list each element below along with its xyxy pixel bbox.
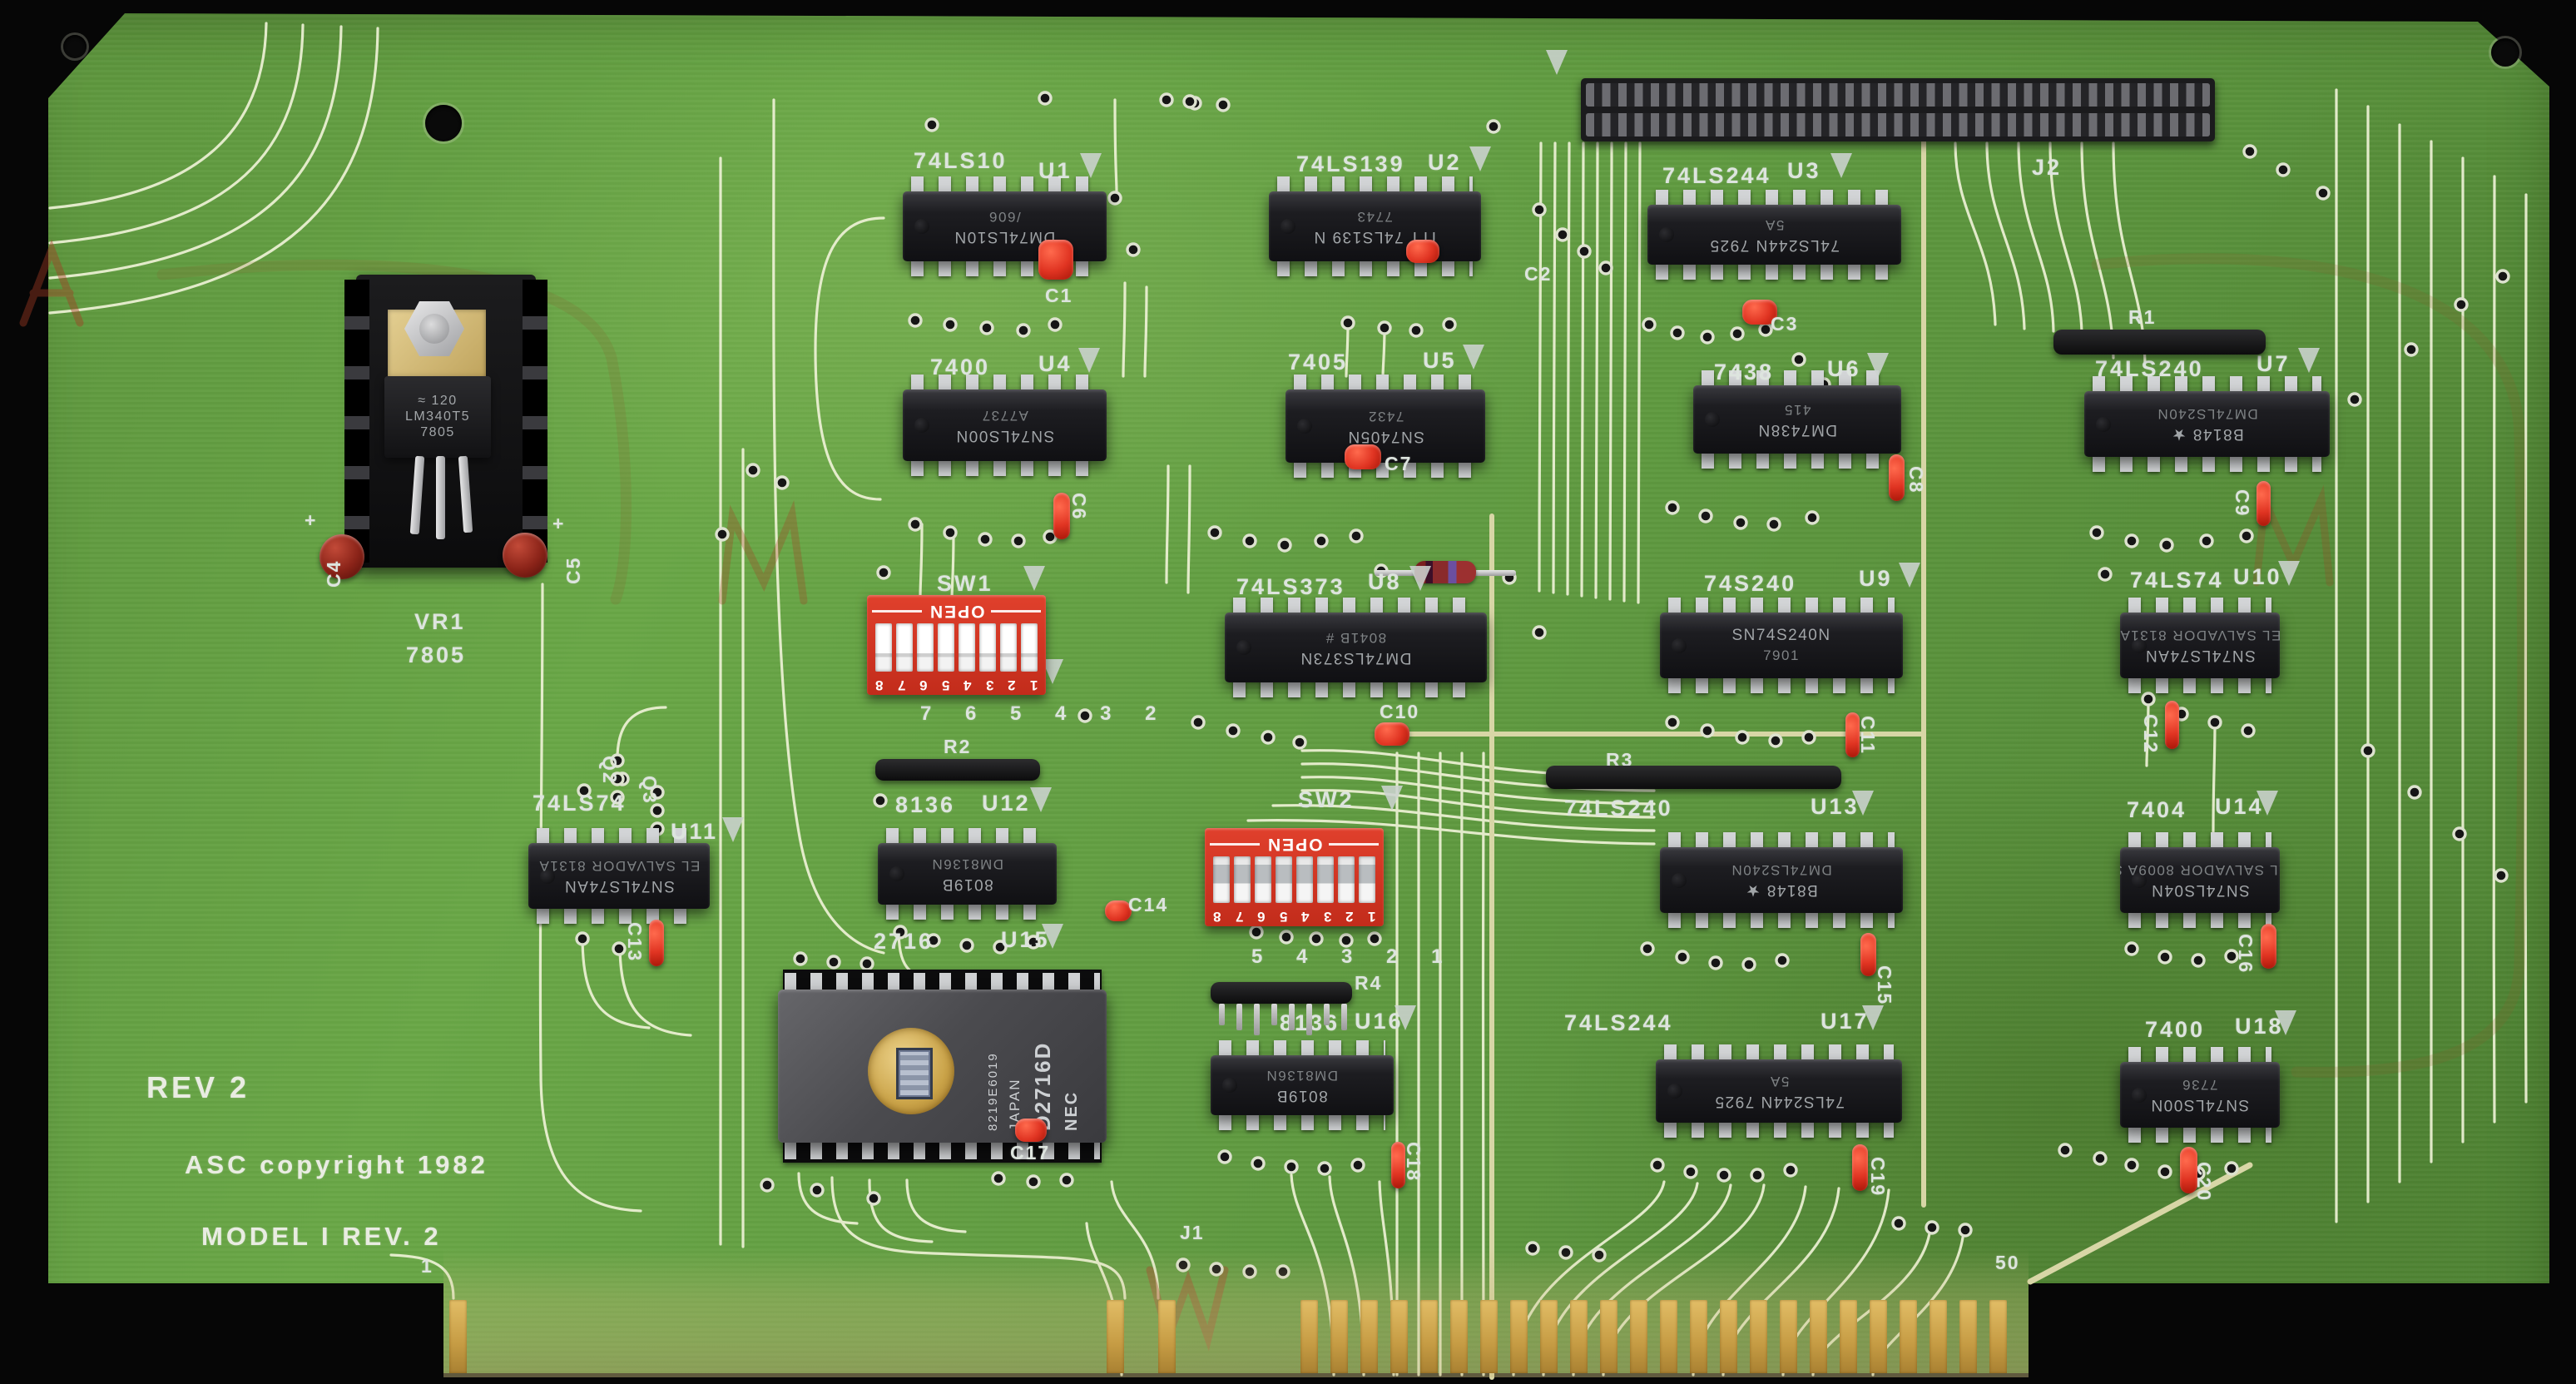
dip-switch-number: 3	[1324, 908, 1331, 925]
dip-switch-number: 8	[875, 677, 883, 693]
capacitor-c8	[1889, 454, 1905, 501]
ic-marking-line: EL SALVADOR 8131A	[2120, 627, 2280, 643]
board-copyright-text: ASC copyright 1982	[185, 1150, 488, 1180]
ic-marking-line: EL SALVADOR 8009A S	[2120, 861, 2280, 878]
silkscreen-triangle-icon	[2298, 348, 2320, 373]
ic-u13: B8148 ★DM74LS240N	[1660, 832, 1903, 928]
silkscreen-label: SW1	[937, 571, 993, 597]
silkscreen-label: R4	[1355, 972, 1382, 995]
via	[2159, 1166, 2171, 1178]
silkscreen-label: U2	[1428, 150, 1462, 176]
via	[1161, 94, 1172, 106]
capacitor-c16	[2261, 924, 2276, 969]
via	[1533, 627, 1545, 638]
regulator-marking: LM340T5	[405, 409, 470, 424]
ic-marking: DM74LS10N/606	[954, 208, 1055, 246]
capacitor-c2	[1406, 240, 1439, 263]
via	[1444, 319, 1455, 330]
via	[1252, 1158, 1264, 1169]
ic-marking: DM74LS373N8041B #	[1300, 629, 1411, 667]
via	[1700, 510, 1712, 522]
ic-marking: SN74S240N7901	[1731, 627, 1830, 664]
silkscreen-label: 7400	[2145, 1017, 2205, 1043]
ic-marking: DM7438N415	[1757, 401, 1837, 439]
ic-body: SN74LS74ANEL SALVADOR 8131A	[2120, 613, 2280, 678]
silkscreen-label: 2716	[874, 929, 934, 955]
silkscreen-triangle-icon	[1830, 153, 1852, 178]
ic-marking-line: 8019B	[1276, 1086, 1328, 1104]
silkscreen-triangle-icon	[1042, 924, 1063, 949]
via	[1743, 959, 1755, 970]
via	[1219, 1151, 1231, 1163]
via	[1926, 1222, 1938, 1233]
dip-switch-number: 3	[986, 677, 993, 693]
via	[2409, 786, 2420, 798]
capacitor-c1	[1038, 240, 1073, 280]
ic-marking-line: DM74LS240N	[2157, 405, 2258, 422]
silkscreen-triangle-icon	[2278, 561, 2300, 586]
edge-finger	[1540, 1300, 1558, 1373]
ic-marking-line: 8041B #	[1325, 629, 1387, 646]
silkscreen-label: C4	[323, 560, 345, 588]
ic-u1: DM74LS10N/606	[903, 176, 1107, 276]
silkscreen-label: 74LS74	[2130, 568, 2224, 593]
via	[861, 958, 873, 970]
resistor-network-pin	[1236, 1004, 1242, 1030]
ic-marking: 8019BDM8136N	[1266, 1067, 1338, 1104]
via	[2143, 693, 2154, 705]
via	[1768, 518, 1780, 530]
silkscreen-triangle-icon	[1030, 787, 1052, 812]
via	[577, 933, 588, 945]
via	[761, 1179, 773, 1191]
via	[2405, 344, 2417, 355]
dip-switch-open-label: OPEN	[929, 601, 985, 621]
resistor-network-r3	[1546, 766, 1841, 789]
dip-switch-number: 4	[964, 677, 971, 693]
dip-switch-slider[interactable]	[938, 623, 954, 672]
via	[1760, 324, 1771, 335]
silkscreen-label: 8136	[895, 792, 955, 818]
ic-marking-line: A7737	[981, 407, 1028, 424]
header-pin-row	[1586, 113, 2210, 136]
ic-u18: SN74LS00N7736	[2120, 1047, 2280, 1143]
via	[2099, 568, 2111, 580]
via	[1369, 933, 1380, 945]
silkscreen-triangle-icon	[2256, 791, 2278, 816]
via	[1533, 204, 1545, 216]
silkscreen-label: U3	[1787, 158, 1821, 184]
edge-finger	[1300, 1300, 1318, 1373]
via	[2317, 187, 2329, 199]
ic-u2: ITT 74LS139 N7743	[1269, 176, 1481, 276]
via	[1039, 92, 1051, 104]
via	[1013, 535, 1024, 547]
silkscreen-label: 7 6 5 4 3 2	[920, 702, 1170, 726]
ic-marking: B8148 ★DM74LS240N	[2157, 405, 2258, 444]
via	[1667, 717, 1678, 728]
edge-pin50-label: 50	[1995, 1252, 2020, 1274]
capacitor-c7	[1345, 444, 1381, 469]
eprom-quartz-window	[868, 1028, 954, 1114]
silkscreen-triangle-icon	[1546, 50, 1568, 75]
edge-pin1-label: 1	[421, 1255, 433, 1277]
silkscreen-label: 74LS244	[1564, 1010, 1673, 1036]
via	[2091, 527, 2103, 538]
via	[1702, 725, 1713, 737]
silkscreen-label: C5	[562, 557, 585, 584]
via	[961, 940, 973, 951]
via	[2241, 530, 2252, 542]
dip-switch-slider[interactable]	[1359, 856, 1375, 903]
via	[874, 795, 886, 806]
silkscreen-label: 74LS139	[1296, 151, 1405, 177]
silkscreen-triangle-icon	[2275, 1010, 2296, 1035]
edge-finger	[1989, 1300, 2007, 1373]
capacitor-c13	[649, 920, 664, 966]
via	[1018, 325, 1029, 336]
ic-marking-line: DM7438N	[1757, 420, 1837, 439]
via	[1667, 502, 1678, 513]
edge-finger	[1780, 1300, 1797, 1373]
via	[1806, 512, 1818, 523]
via	[2192, 955, 2204, 966]
ic-marking: SN74LS04NEL SALVADOR 8009A S	[2120, 861, 2280, 899]
edge-finger	[1360, 1300, 1378, 1373]
edge-finger	[1480, 1300, 1498, 1373]
ic-body: SN74LS00N7736	[2120, 1062, 2280, 1128]
ic-u10: SN74LS74ANEL SALVADOR 8131A	[2120, 598, 2280, 693]
edge-finger	[1600, 1300, 1617, 1373]
edge-finger	[1720, 1300, 1737, 1373]
regulator-marking: 7805	[420, 425, 455, 440]
edge-finger	[1900, 1300, 1917, 1373]
power-traces	[1406, 141, 2250, 1377]
via	[716, 528, 728, 540]
ic-body: SN74LS00NA7737	[903, 389, 1107, 461]
dip-switch-open-row: OPEN	[872, 600, 1041, 622]
edge-finger	[1690, 1300, 1707, 1373]
via	[2277, 164, 2289, 176]
via	[1793, 354, 1805, 365]
via	[1770, 735, 1781, 747]
via	[2159, 951, 2171, 963]
dip-switch-rule	[872, 610, 922, 613]
ic-marking-line: 74LS244N 7925	[1714, 1092, 1845, 1110]
mounting-hole	[63, 35, 87, 58]
dip-switch-number: 6	[919, 677, 927, 693]
edge-finger	[1930, 1300, 1947, 1373]
dip-switch-number: 4	[1301, 908, 1309, 925]
dip-switch-slider[interactable]	[1255, 856, 1271, 903]
via	[1672, 327, 1683, 339]
eprom-die	[896, 1048, 933, 1099]
via	[944, 527, 956, 538]
via	[993, 1173, 1004, 1184]
via	[1310, 933, 1322, 945]
via	[776, 477, 788, 489]
via	[2059, 1144, 2071, 1156]
eprom-body: 8219E6019 JAPAN D2716D NEC	[778, 990, 1107, 1143]
dip-switch-slider[interactable]	[1317, 856, 1334, 903]
ic-marking: SN74LS00N7736	[2150, 1076, 2249, 1114]
silkscreen-triangle-icon	[1078, 348, 1100, 373]
ic-marking-line: SN74LS00N	[955, 426, 1054, 444]
eprom-marking: JAPAN	[1007, 1001, 1023, 1131]
via	[1702, 331, 1713, 343]
edge-finger	[1450, 1300, 1468, 1373]
silkscreen-label: U9	[1859, 566, 1893, 592]
ic-marking-line: SN74LS00N	[2150, 1095, 2249, 1114]
dip-switch-rule	[991, 610, 1041, 613]
via	[1685, 1166, 1697, 1178]
via	[1340, 935, 1352, 946]
board-rev-text: REV 2	[146, 1070, 250, 1105]
ic-marking-line: 7432	[1367, 408, 1404, 424]
dip-switch-slider[interactable]	[979, 623, 996, 672]
dip-switch-slots	[1213, 856, 1375, 903]
silkscreen-label: C18	[1402, 1142, 1424, 1182]
silkscreen-label: 74LS240	[2095, 356, 2204, 382]
dip-switch-number: 2	[1008, 677, 1015, 693]
dip-switch-open-row: OPEN	[1210, 833, 1379, 855]
board-model-text: MODEL I REV. 2	[201, 1222, 442, 1252]
ic-marking: SN74LS00NA7737	[955, 407, 1054, 444]
silkscreen-triangle-icon	[1409, 566, 1431, 591]
silkscreen-label: 74S240	[1704, 571, 1796, 597]
via	[1751, 1169, 1763, 1181]
silkscreen-label: +	[552, 513, 565, 535]
via	[1342, 317, 1354, 329]
silkscreen-label: 7400	[930, 355, 990, 380]
silkscreen-label: C7	[1385, 453, 1412, 475]
dip-switch-slider[interactable]	[1213, 856, 1230, 903]
via	[2495, 870, 2507, 881]
silkscreen-triangle-icon	[1381, 786, 1403, 811]
eprom-marking: D2716D	[1030, 1001, 1056, 1131]
ic-marking-line: 74LS244N 7925	[1709, 236, 1840, 254]
dip-switch-number: 2	[1345, 908, 1353, 925]
ic-body: DM74LS10N/606	[903, 191, 1107, 261]
dip-switch-slider[interactable]	[1000, 623, 1017, 672]
dip-switch-sw2: OPEN87654321	[1205, 828, 1384, 926]
via	[1600, 262, 1612, 274]
ic-marking-line: B8148 ★	[1745, 881, 1818, 900]
capacitor-c10	[1375, 722, 1409, 746]
via	[2094, 1153, 2106, 1164]
ic-body: 8019BDM8136N	[878, 843, 1057, 905]
ic-body: DM7438N415	[1693, 385, 1901, 454]
ic-u3: 74LS244N 79255A	[1647, 190, 1901, 280]
silkscreen-label: Q2	[598, 756, 621, 785]
via	[926, 119, 938, 131]
edge-finger	[1870, 1300, 1887, 1373]
silkscreen-label: C14	[1128, 894, 1168, 916]
ic-u14: SN74LS04NEL SALVADOR 8009A S	[2120, 832, 2280, 928]
ic-marking-line: 7736	[2182, 1076, 2218, 1093]
via	[1731, 328, 1743, 340]
ic-marking: B8148 ★DM74LS240N	[1731, 861, 1832, 900]
via	[811, 1184, 823, 1196]
ic-marking: 74LS244N 79255A	[1714, 1073, 1845, 1110]
via	[2244, 146, 2256, 157]
via	[1262, 732, 1274, 743]
dip-switch-slider[interactable]	[917, 623, 934, 672]
resistor-network-pin	[1219, 1004, 1225, 1025]
resistor-network-r4	[1211, 982, 1352, 1004]
dip-switch-slider[interactable]	[1021, 623, 1038, 672]
ic-body: B8148 ★DM74LS240N	[2084, 391, 2330, 457]
ic-marking-line: SN74LS04N	[2150, 881, 2249, 899]
silkscreen-label: 74LS373	[1236, 574, 1345, 600]
via	[1127, 244, 1139, 255]
edge-finger	[1158, 1300, 1176, 1373]
via	[2362, 745, 2374, 756]
edge-finger	[1750, 1300, 1767, 1373]
via	[2454, 828, 2465, 840]
silkscreen-label: 74LS10	[914, 148, 1008, 174]
ic-body: 74LS244N 79255A	[1656, 1059, 1902, 1123]
ic-marking: SN74LS74ANEL SALVADOR 8131A	[538, 857, 700, 895]
silkscreen-triangle-icon	[1080, 153, 1102, 178]
ic-u12: 8019BDM8136N	[878, 828, 1057, 920]
dip-switch-number: 7	[1236, 908, 1243, 925]
mounting-hole	[425, 105, 462, 141]
silkscreen-label: U12	[982, 791, 1031, 816]
via	[1109, 192, 1121, 204]
silkscreen-triangle-icon	[1463, 345, 1484, 370]
via	[1294, 737, 1305, 748]
silkscreen-label: 74LS240	[1564, 796, 1673, 821]
silkscreen-label: R1	[2128, 306, 2156, 329]
via	[868, 1193, 879, 1204]
silkscreen-label: 7404	[2127, 797, 2187, 823]
silkscreen-label: C8	[1905, 466, 1927, 494]
edge-finger	[1390, 1300, 1408, 1373]
via	[1251, 926, 1262, 938]
via	[2161, 539, 2172, 551]
regulator-body: ≈ 120 LM340T5 7805	[384, 376, 491, 458]
ic-marking: 74LS244N 79255A	[1709, 216, 1840, 254]
via	[2126, 1159, 2138, 1171]
ic-body: SN74LS04NEL SALVADOR 8009A S	[2120, 847, 2280, 913]
silkscreen-label: C15	[1873, 965, 1895, 1005]
silkscreen-triangle-icon	[1852, 791, 1874, 816]
via	[1315, 535, 1327, 547]
header-pin-row	[1586, 83, 2210, 107]
via	[1642, 943, 1653, 955]
ic-body: ITT 74LS139 N7743	[1269, 191, 1481, 261]
silkscreen-label: C17	[1010, 1142, 1050, 1164]
diode-lead	[1471, 570, 1516, 576]
ic-marking-line: DM8136N	[931, 856, 1003, 872]
dip-switch-slider[interactable]	[1276, 856, 1292, 903]
via	[944, 319, 956, 330]
edge-finger	[1630, 1300, 1647, 1373]
ic-body: SN74S240N7901	[1660, 613, 1903, 678]
silkscreen-label: C11	[1856, 716, 1879, 755]
via	[1718, 1169, 1730, 1181]
ic-body: DM74LS373N8041B #	[1225, 613, 1487, 682]
silkscreen-label: U11	[671, 819, 718, 845]
ic-marking: 8019BDM8136N	[931, 856, 1003, 893]
via	[1350, 530, 1362, 542]
edge-connector-label: J1	[1180, 1222, 1205, 1244]
capacitor-c5	[503, 533, 547, 578]
via	[2226, 1163, 2237, 1174]
dip-switch-slider[interactable]	[1338, 856, 1355, 903]
via	[909, 315, 921, 326]
via	[1352, 1159, 1364, 1171]
via	[747, 464, 759, 476]
silkscreen-label: C19	[1866, 1157, 1889, 1197]
dip-switch-numbers: 87654321	[875, 677, 1038, 693]
silkscreen-triangle-icon	[722, 817, 744, 842]
resistor-network-r2	[875, 759, 1040, 781]
via	[1677, 951, 1688, 963]
dip-switch-slider[interactable]	[1296, 856, 1313, 903]
via	[1192, 717, 1204, 728]
via	[2349, 394, 2361, 405]
capacitor-c12	[2165, 701, 2179, 749]
ic-u16: 8019BDM8136N	[1211, 1040, 1394, 1130]
edge-finger	[1510, 1300, 1528, 1373]
ic-body: 8019BDM8136N	[1211, 1055, 1394, 1115]
via	[1217, 99, 1229, 111]
silkscreen-label: 7805	[406, 642, 466, 668]
ic-u9: SN74S240N7901	[1660, 598, 1903, 693]
via	[1736, 732, 1748, 743]
ic-u8: DM74LS373N8041B #	[1225, 598, 1487, 697]
silkscreen-label: U1	[1038, 158, 1073, 184]
dip-switch-slider[interactable]	[959, 623, 975, 672]
silkscreen-triangle-icon	[1867, 353, 1889, 378]
ic-marking-line: SN74LS74AN	[2144, 646, 2255, 664]
edge-finger	[1330, 1300, 1348, 1373]
silkscreen-label: Q3	[638, 776, 661, 805]
dip-switch-slider[interactable]	[875, 623, 892, 672]
ic-marking-line: SN74S240N	[1731, 627, 1830, 645]
silkscreen-label: C3	[1771, 313, 1798, 335]
header-j2-label: J2	[2032, 155, 2062, 181]
silkscreen-label: VR1	[414, 609, 466, 635]
via	[2126, 943, 2138, 955]
via	[1735, 517, 1746, 528]
dip-switch-slider[interactable]	[1234, 856, 1251, 903]
ic-marking-line: 7901	[1763, 647, 1800, 664]
silkscreen-label: C13	[623, 922, 646, 962]
via	[828, 956, 840, 968]
via	[1410, 325, 1422, 336]
dip-switch-number: 8	[1213, 908, 1221, 925]
silkscreen-label: 74LS74	[533, 791, 627, 816]
mounting-hole	[2491, 38, 2519, 67]
ic-marking-line: 5A	[1765, 216, 1785, 233]
via	[2126, 535, 2138, 547]
ic-marking-line: DM74LS240N	[1731, 861, 1832, 878]
via	[2209, 717, 2221, 728]
via	[1803, 732, 1815, 743]
ic-marking-line: /606	[988, 208, 1021, 225]
via	[909, 518, 921, 530]
resistor-network-pin	[1324, 1004, 1330, 1025]
via	[1379, 322, 1390, 334]
silkscreen-triangle-icon	[1023, 566, 1045, 591]
silkscreen-label: U4	[1038, 351, 1073, 377]
dip-switch-slider[interactable]	[896, 623, 913, 672]
dip-switch-number: 7	[898, 677, 905, 693]
pin-header-j2	[1581, 78, 2215, 141]
